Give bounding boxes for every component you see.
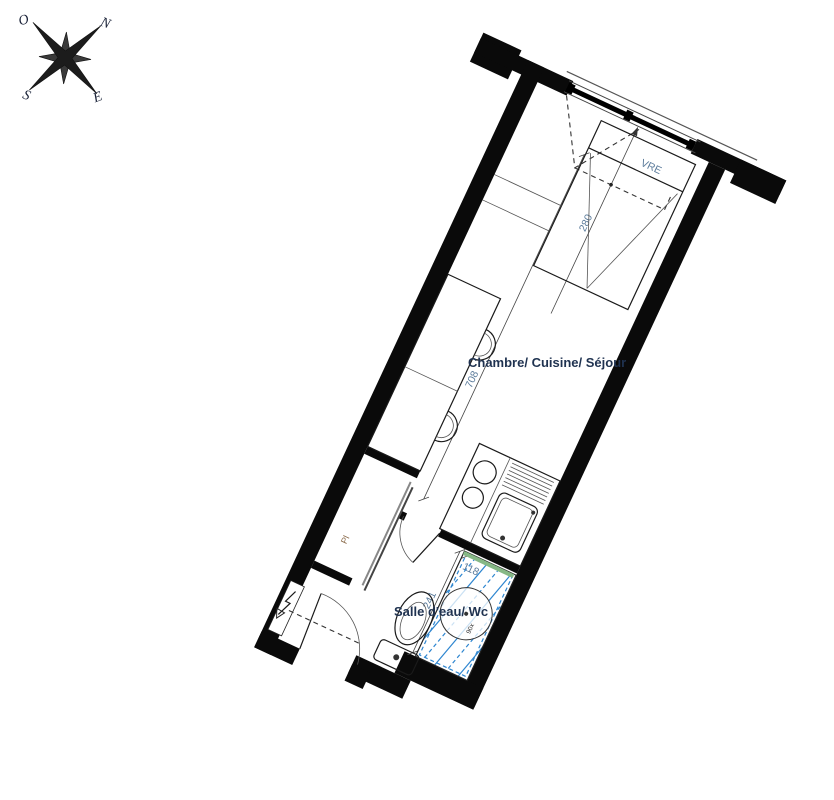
compass-star-long [29,22,100,94]
floor-plan-page: O N S E [0,0,834,800]
sink-drainboard [502,463,554,504]
cooktop-burner [469,457,500,488]
entry-door-leaf [296,594,325,649]
desk-edge-line [494,175,561,206]
cabinet-arc-inner [436,415,457,442]
compass-label-south: S [20,87,32,104]
sink-basin-inner [485,496,534,548]
bathroom-door-swing [388,516,429,562]
bed-pillow-line [589,148,683,192]
sliding-door-panel [364,487,412,590]
dim-text-280: 280 [577,212,595,233]
kitchen-divider [471,458,511,543]
partition-counter-closet [364,446,420,478]
floor-plan-drawing: O N S E [0,0,834,800]
bathroom-label: Salle d'eau/ Wc [394,604,488,619]
entry-door-swing [300,593,378,664]
dim-dot-280 [609,182,614,187]
compass-label-north: N [97,15,112,33]
desk-edge-line [483,200,550,231]
apartment-plan: VRE 280 708 241 118 [207,33,789,768]
window-sill-line [567,71,757,160]
compass-rose: O N S E [17,12,113,107]
partition-closet-entry [311,561,352,586]
cooktop-burner [459,484,487,512]
compass-label-west: O [17,12,31,29]
toilet-flush-button [392,653,400,661]
closet-label: Pl [339,534,351,545]
entry-dashed-line [289,611,362,645]
sliding-door-track [363,482,411,585]
counter-divider [405,367,458,392]
compass-label-east: E [90,89,105,107]
dim-line-280 [551,130,636,313]
window-label: VRE [639,157,664,177]
dim-tick [418,494,429,505]
exterior-walls [207,33,789,768]
wall-right [458,162,725,708]
main-room-label: Chambre/ Cuisine/ Séjour [468,355,626,370]
wall-top-right-block [730,159,786,204]
dim-line-708 [424,155,585,499]
sink-drain [499,535,506,542]
bathroom-door-leaf [413,528,440,568]
